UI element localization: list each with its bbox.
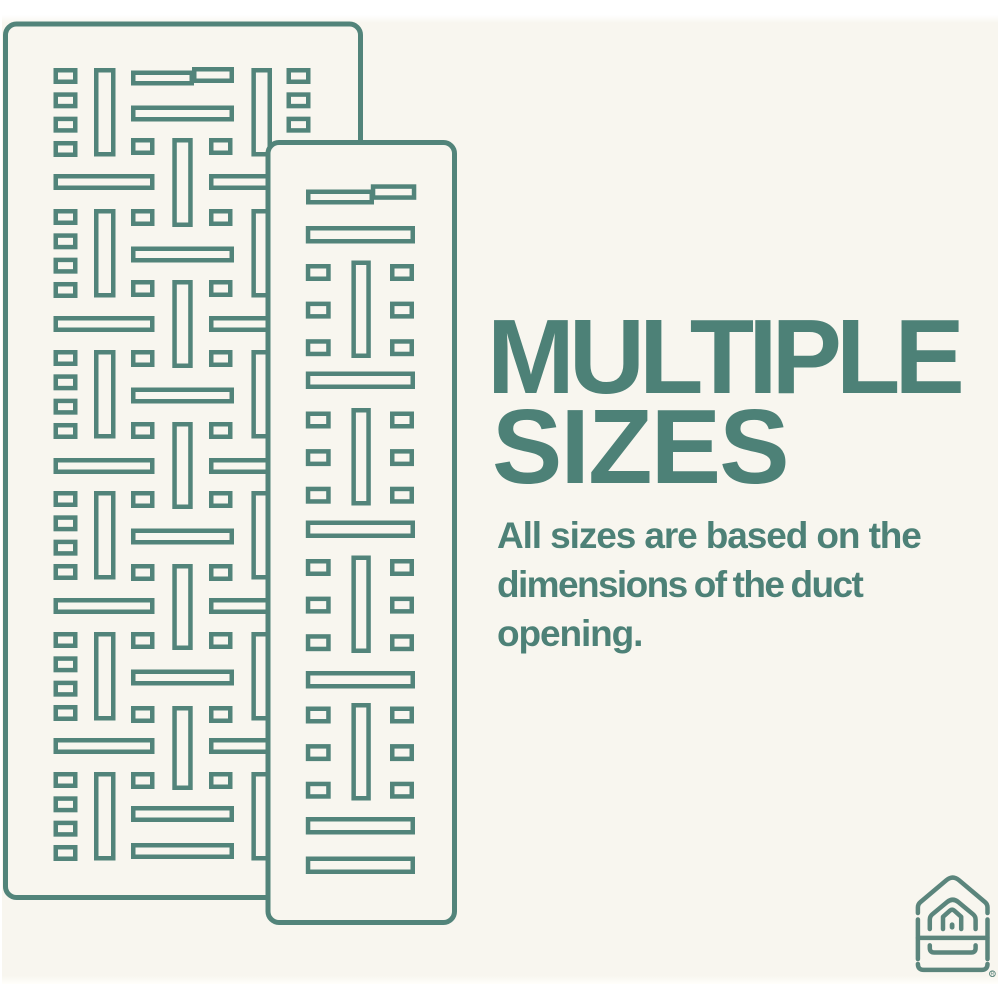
svg-text:R: R bbox=[991, 972, 995, 978]
